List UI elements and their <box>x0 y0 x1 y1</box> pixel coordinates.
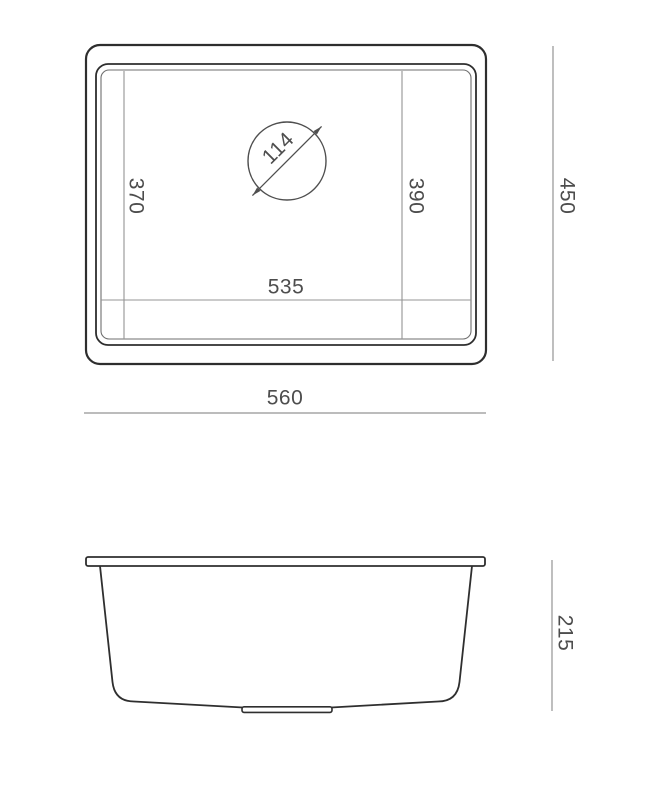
label-height: 215 <box>553 615 576 652</box>
label-bowl-width: 535 <box>268 276 305 299</box>
side-view-rim-flange <box>86 557 485 566</box>
label-right-inner-depth: 390 <box>404 178 427 215</box>
dimension-overall-depth: 450 <box>553 46 578 361</box>
label-overall-depth: 450 <box>555 178 578 215</box>
sink-technical-drawing: 114 370 390 535 560 450 <box>0 0 646 800</box>
drawing-canvas: 114 370 390 535 560 450 <box>0 0 646 800</box>
side-view-drain <box>242 707 332 713</box>
side-view-right-wall <box>331 566 472 708</box>
side-view <box>86 557 485 712</box>
label-left-inner-depth: 370 <box>124 178 147 215</box>
side-view-left-wall <box>100 566 243 708</box>
label-overall-width: 560 <box>267 387 304 410</box>
top-view: 114 370 390 535 <box>86 45 486 364</box>
dimension-overall-width: 560 <box>84 387 486 413</box>
dimension-height: 215 <box>552 560 576 711</box>
label-drain-diameter: 114 <box>258 128 299 169</box>
